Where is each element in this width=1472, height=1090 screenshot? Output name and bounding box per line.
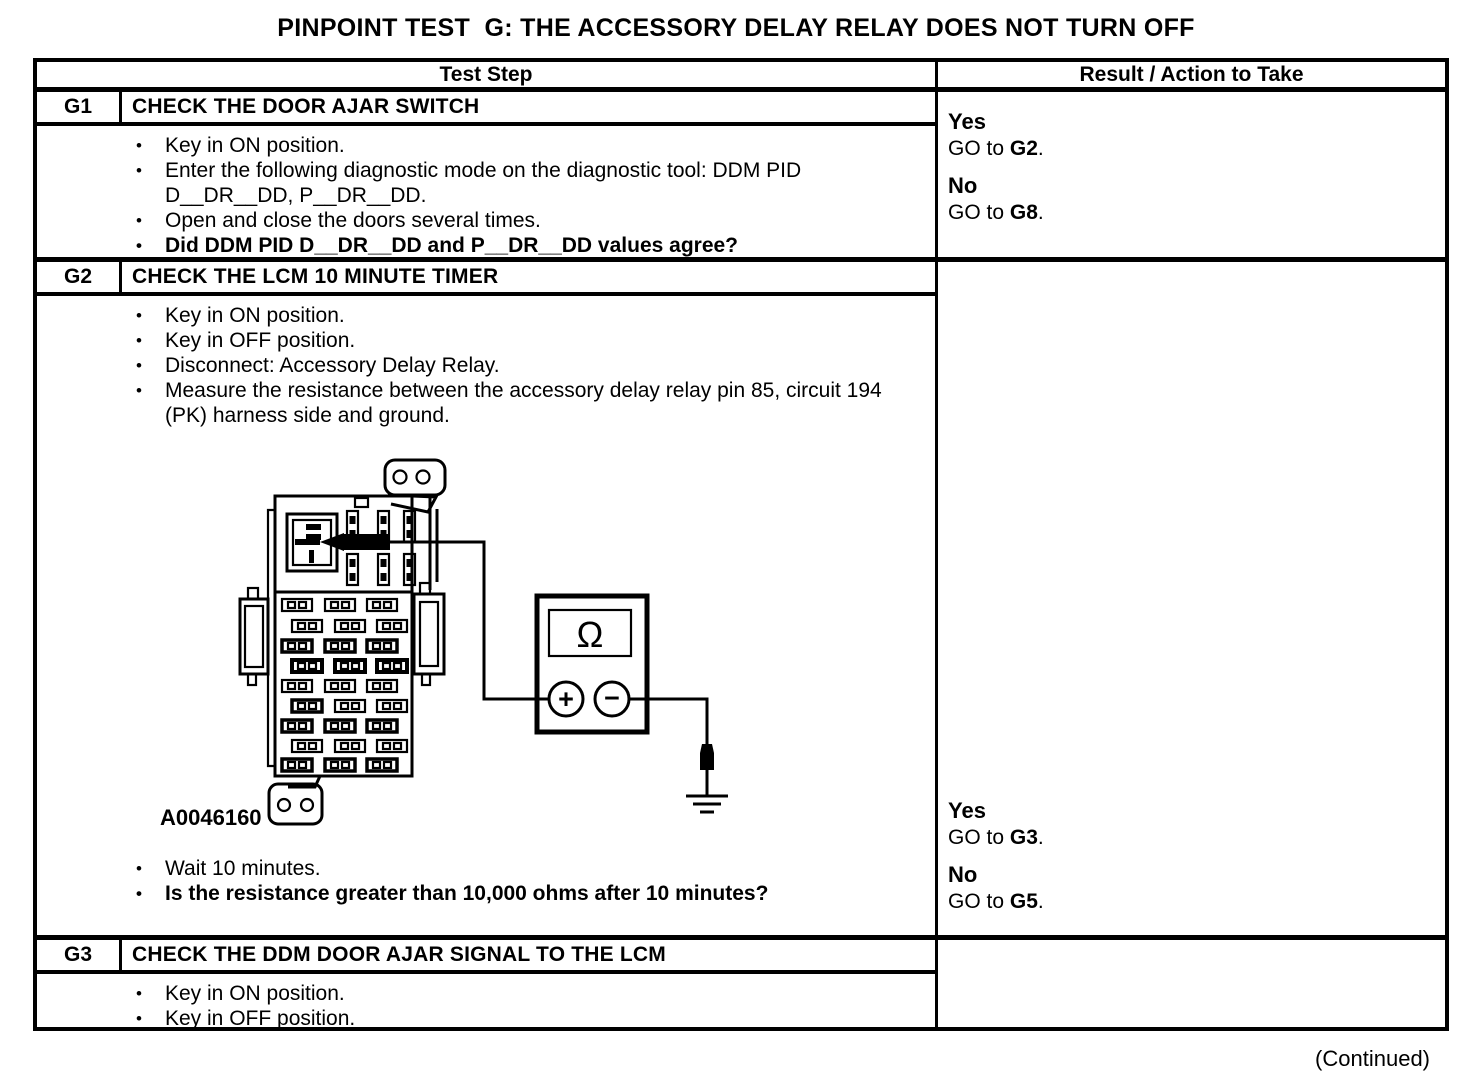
bottom-bracket-icon: [269, 776, 322, 824]
action-target-step: G8: [1010, 201, 1038, 224]
result-answer: Yes: [948, 108, 1445, 136]
result-action: GO to G3.: [948, 825, 1445, 850]
result-action: GO to G8.: [948, 200, 1445, 225]
step-title-row: G1 CHECK THE DOOR AJAR SWITCH: [37, 92, 935, 126]
action-target-step: G2: [1010, 137, 1038, 160]
figure-fuse-box-ohmmeter: Ω + −: [132, 454, 935, 834]
action-text: GO to: [948, 201, 1010, 224]
step-title: CHECK THE DOOR AJAR SWITCH: [122, 92, 935, 122]
bullet-item-question: Is the resistance greater than 10,000 oh…: [165, 881, 917, 906]
result-action: GO to G2.: [948, 136, 1445, 161]
action-period: .: [1038, 890, 1044, 913]
step-block-g3: G3 CHECK THE DDM DOOR AJAR SIGNAL TO THE…: [37, 935, 1445, 1027]
table-header-row: Test Step Result / Action to Take: [37, 62, 1445, 92]
step-title-row: G2 CHECK THE LCM 10 MINUTE TIMER: [37, 262, 935, 296]
result-column-header: Result / Action to Take: [938, 62, 1445, 87]
step-instructions: Wait 10 minutes. Is the resistance great…: [37, 856, 935, 906]
bullet-item: Enter the following diagnostic mode on t…: [165, 158, 917, 208]
step-instructions: Key in ON position. Key in OFF position.…: [37, 303, 935, 428]
step-block-g1: G1 CHECK THE DOOR AJAR SWITCH Key in ON …: [37, 92, 1445, 257]
result-answer: No: [948, 172, 1445, 200]
page-title: PINPOINT TEST G: THE ACCESSORY DELAY REL…: [0, 14, 1472, 43]
action-target-step: G5: [1010, 890, 1038, 913]
step-title-row: G3 CHECK THE DDM DOOR AJAR SIGNAL TO THE…: [37, 940, 935, 974]
step-id: G3: [37, 940, 119, 970]
bullet-item: Key in ON position.: [165, 303, 917, 328]
result-answer: Yes: [948, 797, 1445, 825]
action-period: .: [1038, 201, 1044, 224]
bullet-item: Key in ON position.: [165, 981, 917, 1006]
step-instructions: Key in ON position. Enter the following …: [37, 133, 935, 258]
bullet-item: Key in ON position.: [165, 133, 917, 158]
continued-note: (Continued): [1315, 1046, 1430, 1072]
action-period: .: [1038, 826, 1044, 849]
ground-lead-wire: [629, 699, 714, 796]
result-cell-g1: Yes GO to G2. No GO to G8.: [938, 92, 1445, 257]
right-connector-icon: [414, 583, 444, 685]
positive-terminal-label: +: [558, 684, 574, 714]
step-id: G1: [37, 92, 119, 122]
fuse-box-ohmmeter-diagram: Ω + −: [132, 454, 732, 829]
bullet-item: Key in OFF position.: [165, 1006, 917, 1031]
mini-fuse-grid: [282, 599, 407, 771]
action-text: GO to: [948, 890, 1010, 913]
bullet-item: Open and close the doors several times.: [165, 208, 917, 233]
step-block-g2: G2 CHECK THE LCM 10 MINUTE TIMER Key in …: [37, 257, 1445, 935]
ohmmeter-icon: Ω + −: [537, 596, 647, 732]
bullet-item: Wait 10 minutes.: [165, 856, 917, 881]
negative-terminal-label: −: [604, 683, 620, 713]
bullet-item: Key in OFF position.: [165, 328, 917, 353]
ohm-symbol: Ω: [577, 614, 604, 655]
step-instructions: Key in ON position. Key in OFF position.: [37, 981, 935, 1031]
ground-icon: [686, 796, 728, 812]
step-title: CHECK THE LCM 10 MINUTE TIMER: [122, 262, 935, 292]
action-target-step: G3: [1010, 826, 1038, 849]
result-action: GO to G5.: [948, 889, 1445, 914]
left-connector-icon: [240, 588, 268, 685]
figure-label: A0046160: [160, 805, 262, 829]
bullet-item: Disconnect: Accessory Delay Relay.: [165, 353, 917, 378]
bullet-item-question: Did DDM PID D__DR__DD and P__DR__DD valu…: [165, 233, 917, 258]
bullet-item: Measure the resistance between the acces…: [165, 378, 917, 428]
pinpoint-test-table: Test Step Result / Action to Take G1 CHE…: [33, 58, 1449, 1031]
action-text: GO to: [948, 826, 1010, 849]
test-step-column-header: Test Step: [37, 62, 935, 87]
result-cell-g3: [938, 940, 1445, 1027]
action-period: .: [1038, 137, 1044, 160]
result-cell-g2: Yes GO to G3. No GO to G5.: [938, 262, 1445, 935]
step-title: CHECK THE DDM DOOR AJAR SIGNAL TO THE LC…: [122, 940, 935, 970]
action-text: GO to: [948, 137, 1010, 160]
step-id: G2: [37, 262, 119, 292]
result-answer: No: [948, 861, 1445, 889]
